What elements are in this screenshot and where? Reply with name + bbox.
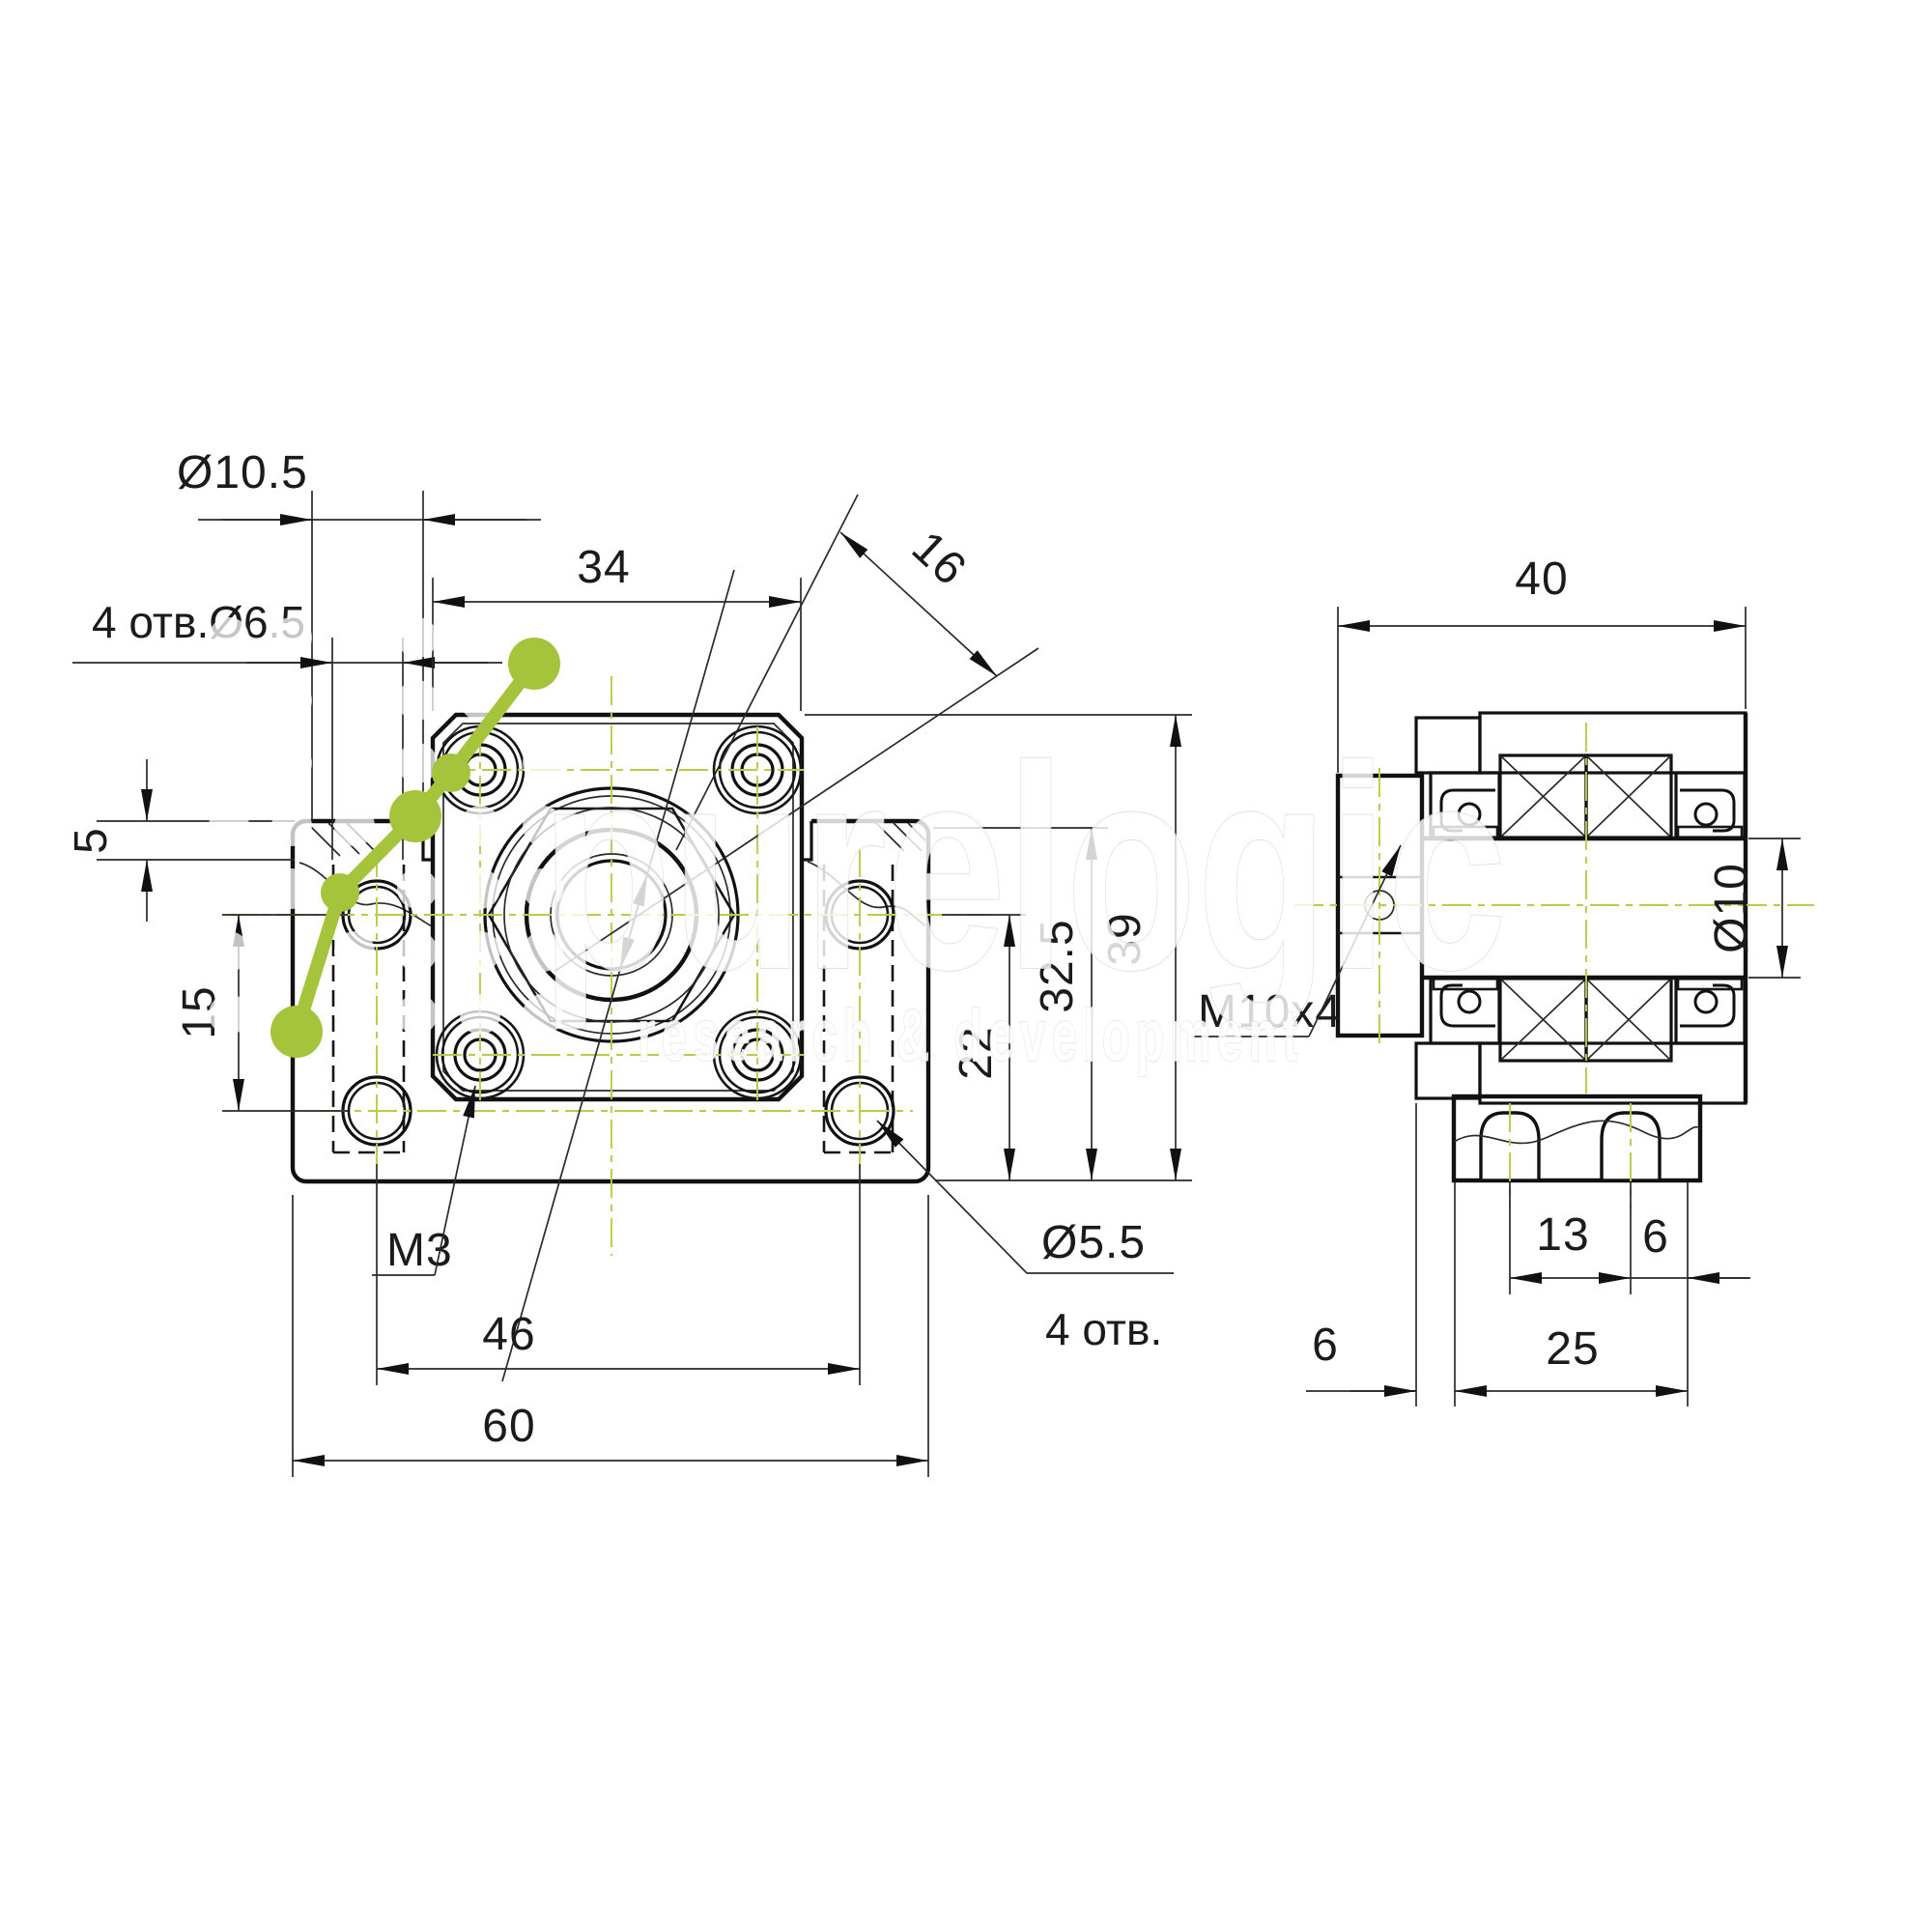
- dim-flange-width: 34: [577, 542, 630, 593]
- dim-rear-hole-qty: 4 отв.: [1045, 1304, 1162, 1354]
- dim-step: 5: [66, 827, 117, 854]
- dim-m3: M3: [386, 1225, 453, 1276]
- dim-total-width: 40: [1515, 554, 1568, 605]
- seal: [1676, 773, 1745, 838]
- dim-rear-hole: Ø5.5: [1041, 1217, 1146, 1268]
- watermark-brand: purelogic: [541, 705, 1507, 1032]
- dim-foot-holes: 13: [1536, 1209, 1589, 1261]
- dim-base-width: 60: [482, 1401, 535, 1452]
- watermark-tagline: research & development: [638, 995, 1304, 1077]
- dim-foot-width: 25: [1546, 1323, 1599, 1375]
- dim-collar-offset: 6: [1312, 1320, 1339, 1371]
- dim-hole-spacing: 46: [482, 1309, 535, 1360]
- dim-foot-edge: 6: [1642, 1211, 1669, 1263]
- engineering-drawing: Ø10.5 4 отв.Ø6.5 34 16: [0, 0, 1932, 1932]
- dim-counterbore: Ø10.5: [177, 447, 308, 498]
- dim-shaft-dia: Ø10: [1706, 863, 1757, 953]
